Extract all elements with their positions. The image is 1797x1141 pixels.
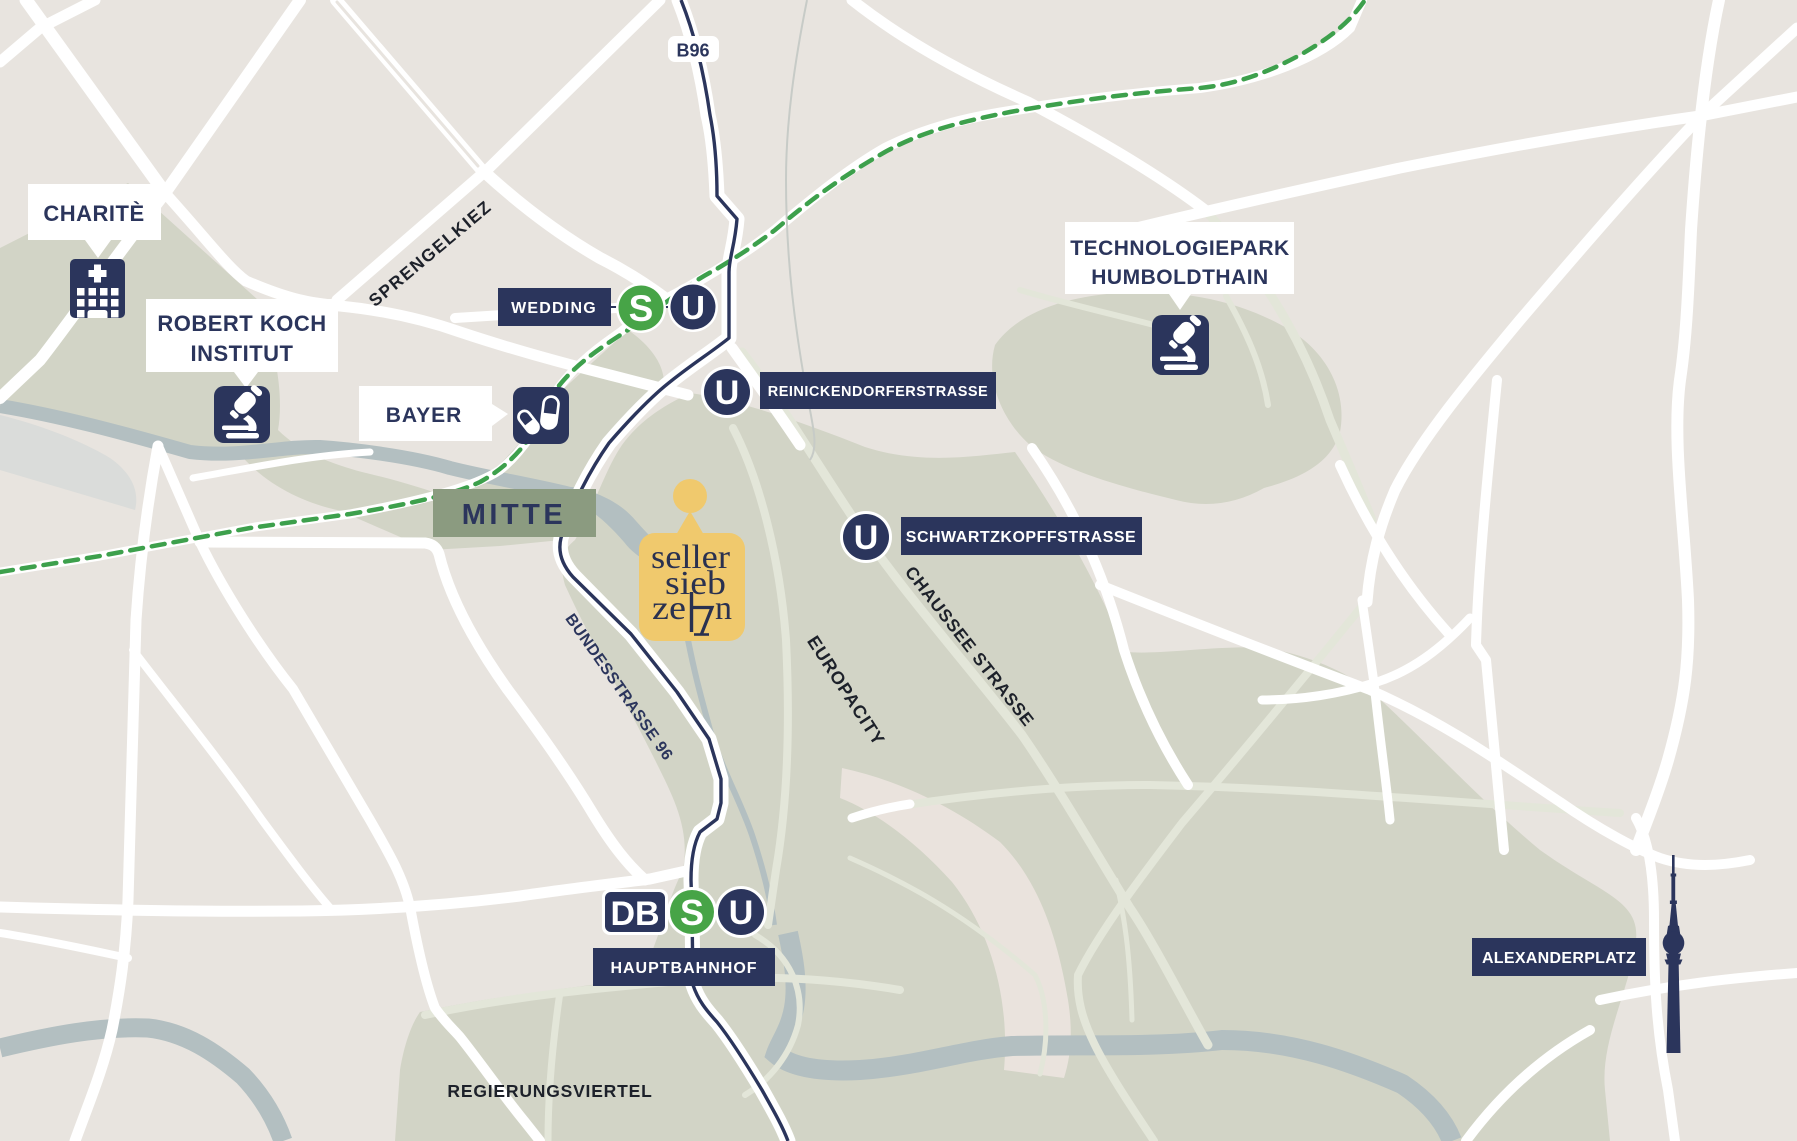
- svg-text:SCHWARTZKOPFFSTRASSE: SCHWARTZKOPFFSTRASSE: [906, 529, 1136, 546]
- svg-text:DB: DB: [610, 895, 659, 933]
- svg-text:U: U: [681, 289, 705, 326]
- svg-text:REGIERUNGSVIERTEL: REGIERUNGSVIERTEL: [447, 1081, 652, 1101]
- svg-text:HUMBOLDTHAIN: HUMBOLDTHAIN: [1091, 266, 1268, 289]
- svg-text:B96: B96: [676, 41, 709, 61]
- svg-text:U: U: [715, 374, 740, 412]
- svg-text:TECHNOLOGIEPARK: TECHNOLOGIEPARK: [1070, 237, 1289, 260]
- svg-text:BAYER: BAYER: [386, 404, 463, 427]
- svg-text:S: S: [629, 288, 654, 329]
- svg-text:CHARITÈ: CHARITÈ: [43, 201, 144, 226]
- svg-text:ze: ze: [652, 590, 686, 627]
- svg-text:n: n: [715, 590, 732, 627]
- svg-text:WEDDING: WEDDING: [511, 300, 597, 317]
- svg-text:S: S: [680, 892, 704, 933]
- svg-text:MITTE: MITTE: [462, 499, 567, 531]
- svg-text:INSTITUT: INSTITUT: [191, 341, 294, 366]
- svg-text:REINICKENDORFERSTRASSE: REINICKENDORFERSTRASSE: [768, 384, 988, 400]
- svg-text:U: U: [729, 894, 754, 932]
- svg-text:U: U: [854, 519, 879, 557]
- svg-text:ALEXANDERPLATZ: ALEXANDERPLATZ: [1482, 950, 1636, 967]
- svg-text:ROBERT KOCH: ROBERT KOCH: [157, 311, 326, 336]
- svg-text:HAUPTBAHNHOF: HAUPTBAHNHOF: [610, 960, 757, 977]
